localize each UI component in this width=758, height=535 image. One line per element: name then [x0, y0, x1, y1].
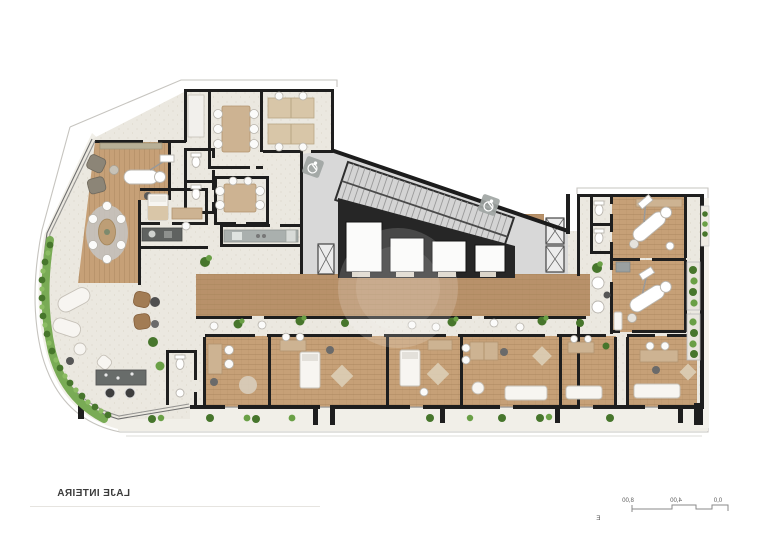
watermark [338, 228, 458, 348]
side-table [110, 166, 119, 175]
pouf [74, 343, 86, 355]
doctor-stool [630, 240, 639, 249]
desk [568, 342, 594, 353]
elevator-4 [475, 245, 505, 272]
title-label: LAJE INTEIRA [46, 488, 130, 499]
sofa [505, 386, 547, 400]
doctor-stool [628, 314, 637, 323]
meeting-room-1 [214, 106, 259, 152]
couch [614, 312, 622, 330]
scale-bar-caption: Escala Gráfica [596, 515, 600, 522]
pouf [472, 382, 484, 394]
office-chair [652, 366, 660, 374]
scale-tick-label: 0,0 [713, 498, 722, 504]
desk [640, 350, 678, 362]
scale-tick-label: 8,00 [622, 498, 634, 504]
title-rule [30, 506, 320, 507]
desk [208, 344, 222, 374]
meeting-table [224, 184, 256, 212]
shaft-left [318, 244, 334, 274]
plant-pot [148, 337, 158, 347]
desk [428, 340, 452, 350]
stool [125, 388, 135, 398]
leather-armchair [133, 313, 151, 330]
scale-bar-mirrored-group: 0,0 4,00 8,00 14,00 24,00 Escala Gráfica [596, 498, 728, 522]
pouf-dark [66, 357, 74, 365]
copa-kitchenette [142, 228, 182, 241]
sofa [566, 386, 602, 399]
coffee-counter [96, 370, 146, 385]
floor-plan-drawing [0, 0, 758, 535]
side-table-dark [151, 320, 159, 328]
plant-pot [156, 362, 165, 371]
scale-bar-segments [632, 505, 728, 512]
scale-bar: 0,0 4,00 8,00 14,00 24,00 Escala Gráfica [596, 494, 736, 522]
side-table-dark [150, 297, 160, 307]
office-chair [326, 346, 334, 354]
floor-plan-page: LAJE INTEIRA 0,0 4,00 8,00 14,00 24,00 E… [0, 0, 758, 535]
plant-pot [603, 343, 610, 350]
rug [239, 376, 257, 394]
hall-cabinet [188, 95, 204, 137]
sofa [634, 384, 680, 398]
spittoon [666, 242, 674, 250]
kitchen [224, 230, 298, 242]
office-chair [500, 348, 508, 356]
desk [172, 208, 202, 219]
desk [280, 340, 306, 351]
meeting-table [222, 106, 250, 152]
sink-counter [616, 262, 630, 272]
office-chair [210, 378, 218, 386]
scale-tick-label: 4,00 [670, 498, 682, 504]
stool [105, 388, 115, 398]
sideboard [100, 143, 162, 149]
